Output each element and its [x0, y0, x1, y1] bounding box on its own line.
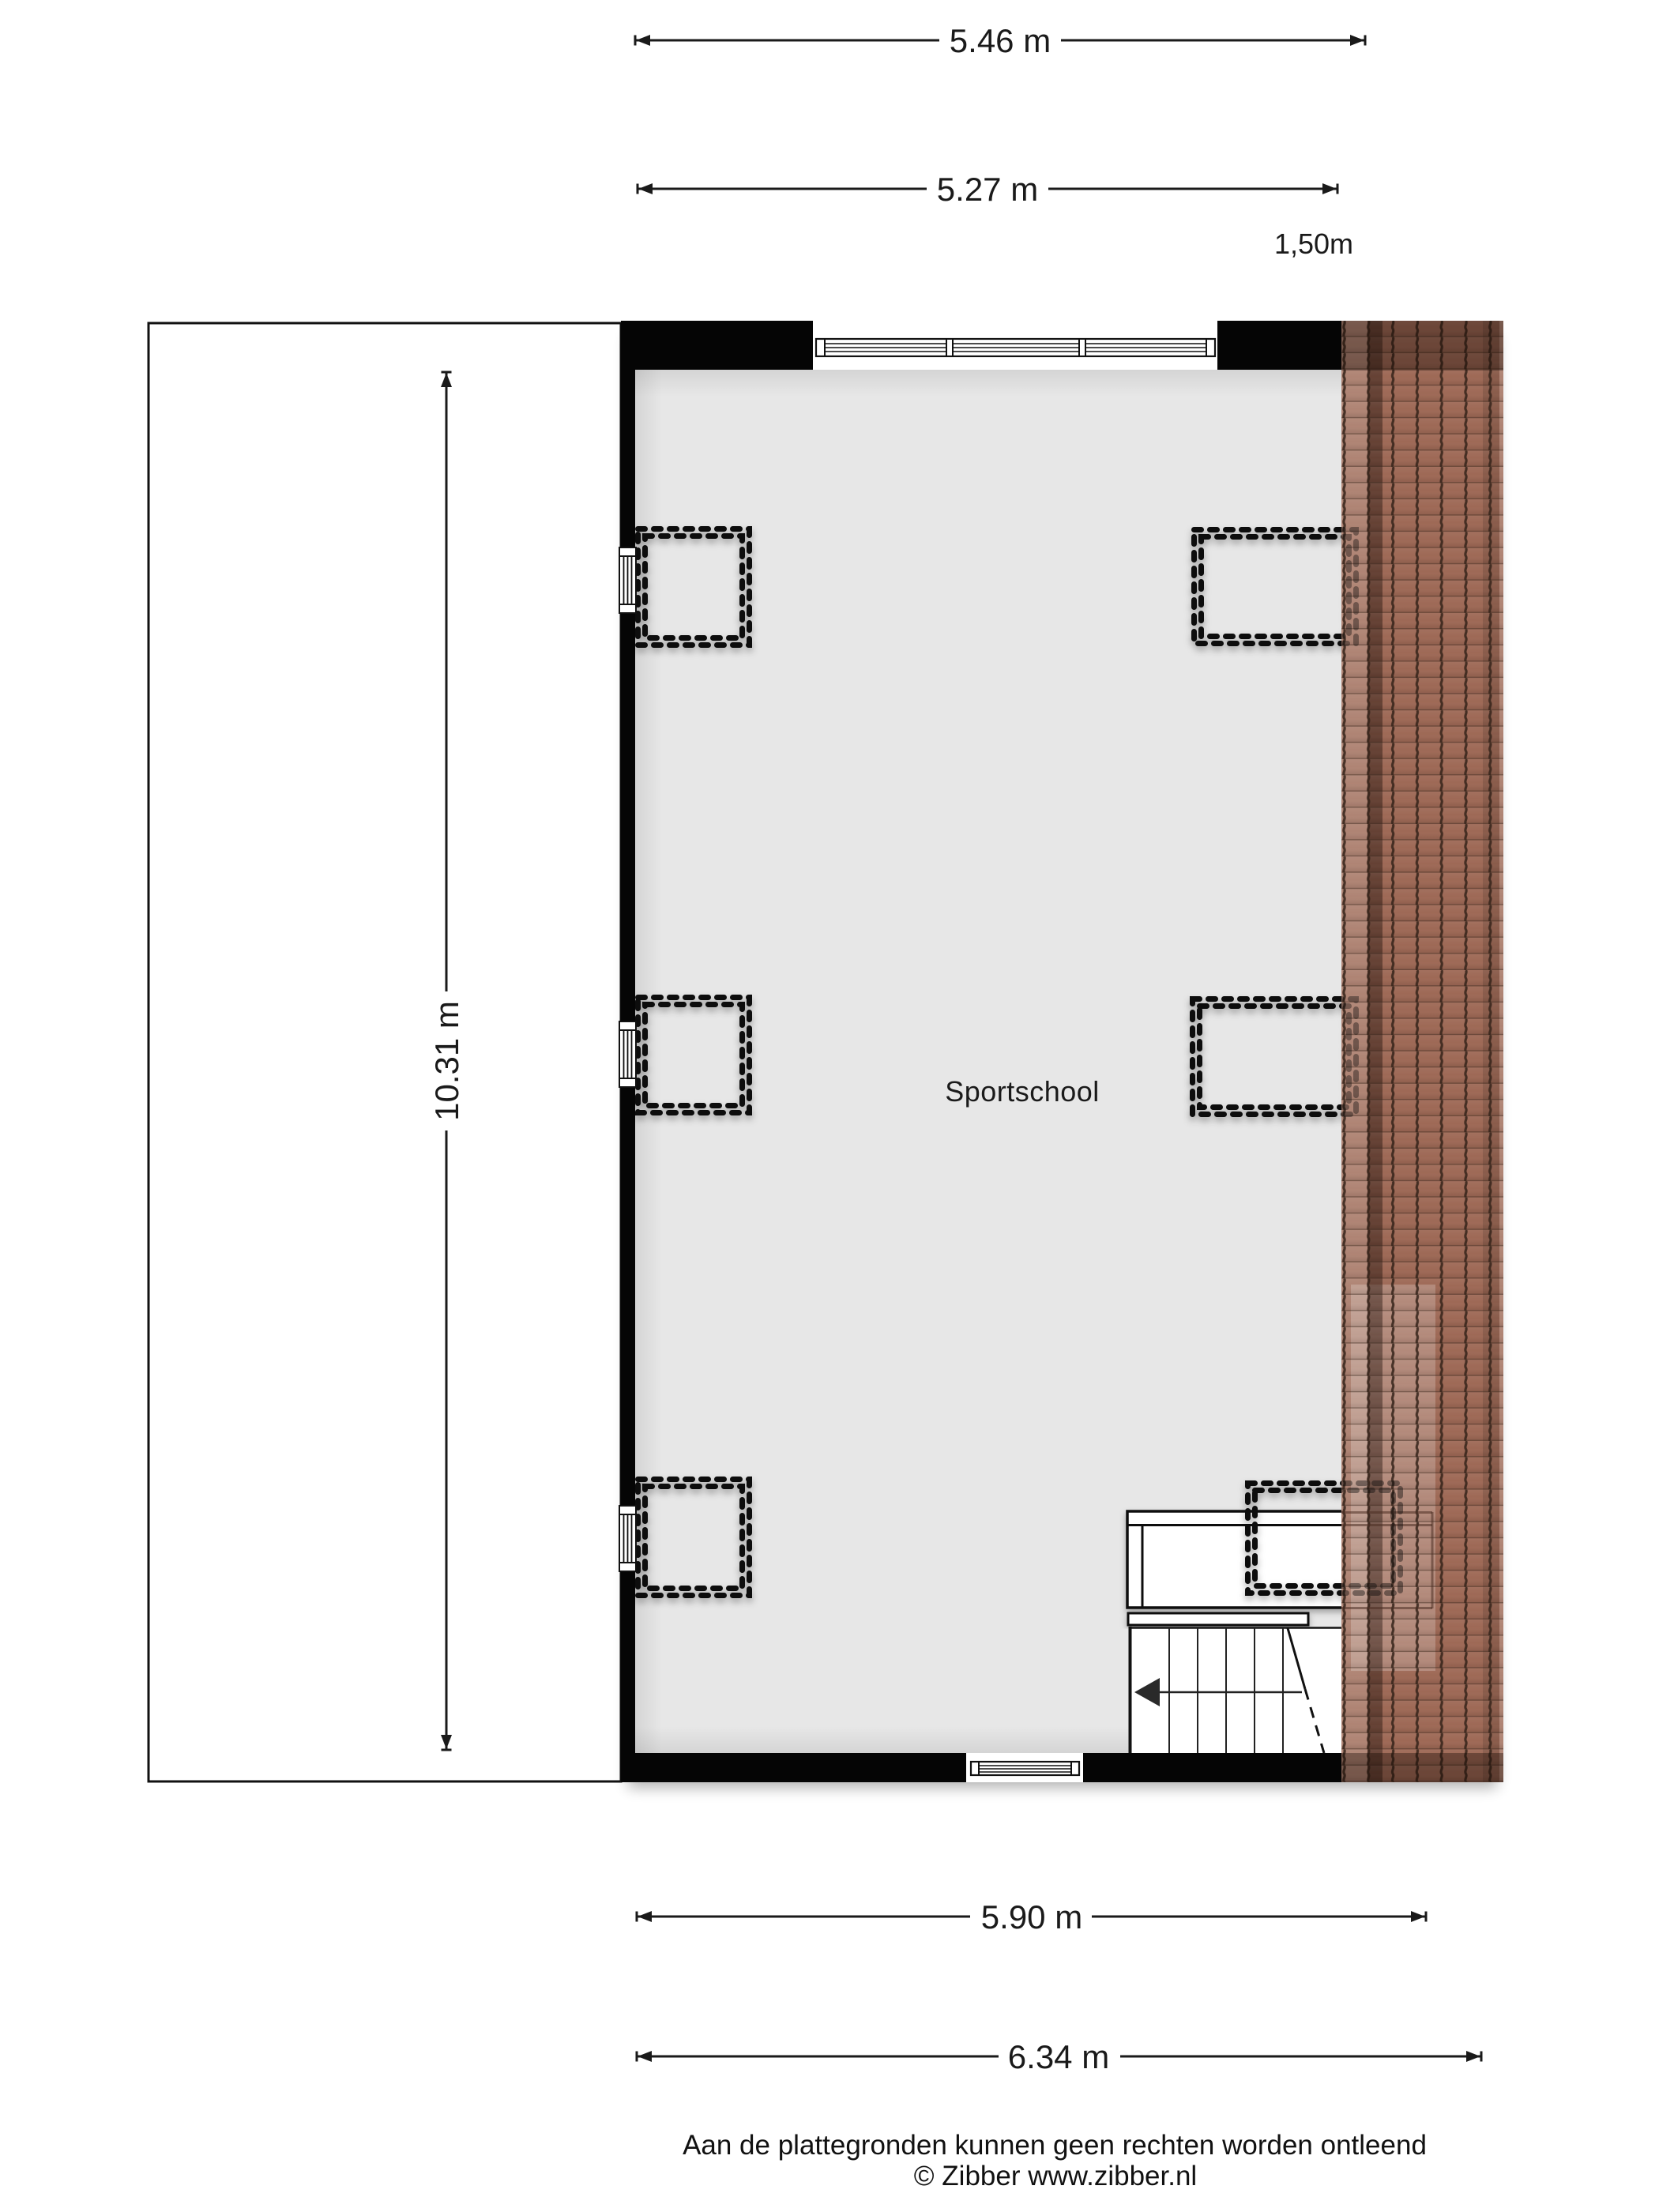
- svg-text:Aan de plattegronden kunnen ge: Aan de plattegronden kunnen geen rechten…: [683, 2130, 1427, 2161]
- svg-text:5.90 m: 5.90 m: [981, 1898, 1082, 1935]
- svg-text:1,50m: 1,50m: [1274, 228, 1353, 260]
- svg-text:Sportschool: Sportschool: [945, 1075, 1100, 1108]
- svg-text:10.31 m: 10.31 m: [428, 1001, 465, 1121]
- svg-text:5.27 m: 5.27 m: [937, 171, 1038, 208]
- svg-text:5.46 m: 5.46 m: [950, 22, 1051, 59]
- svg-text:6.34 m: 6.34 m: [1008, 2038, 1109, 2075]
- svg-text:© Zibber www.zibber.nl: © Zibber www.zibber.nl: [914, 2161, 1197, 2191]
